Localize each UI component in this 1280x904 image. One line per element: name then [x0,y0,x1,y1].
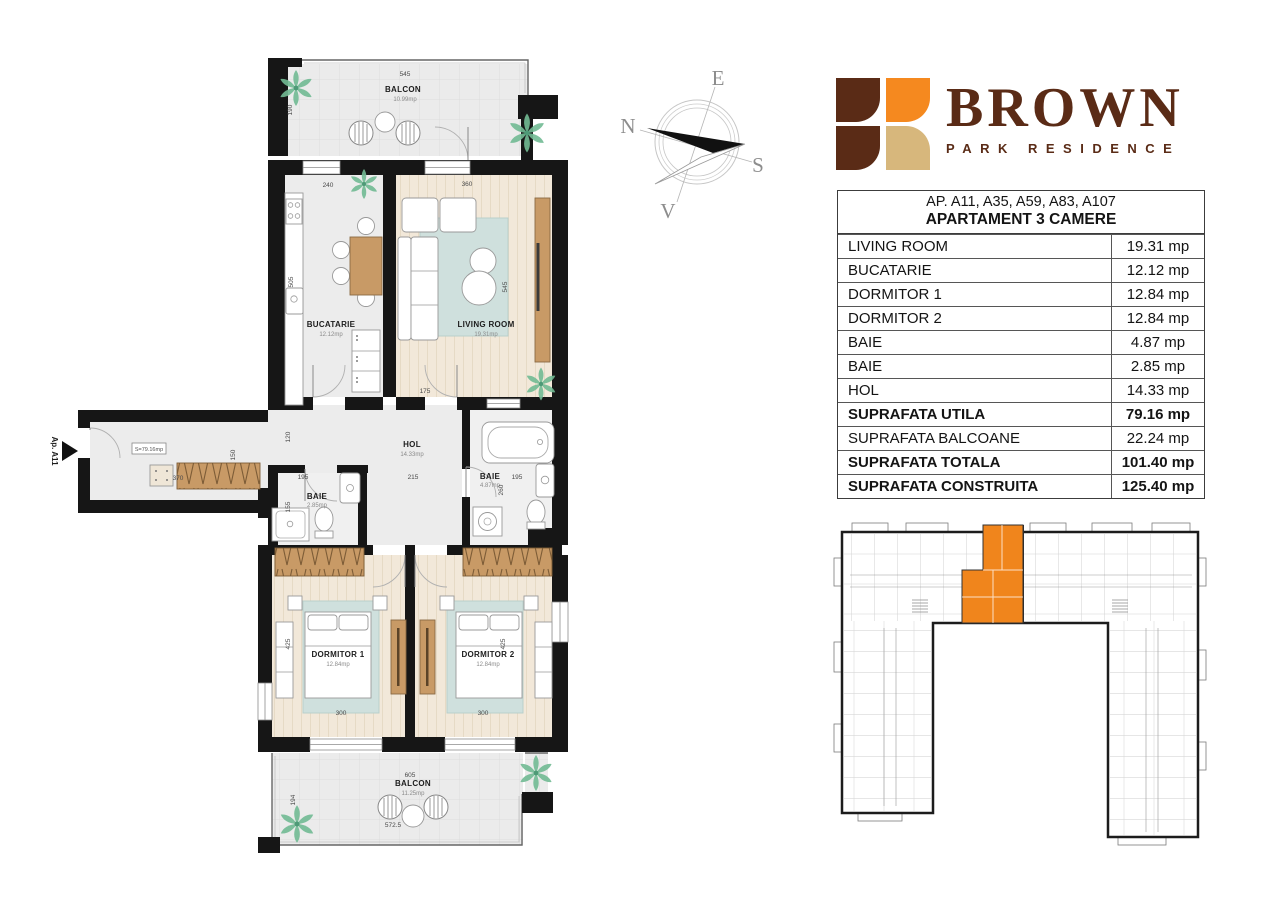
entry-arrow-icon [62,441,78,461]
brand-title: BROWN [946,80,1212,136]
svg-text:120: 120 [285,431,292,442]
svg-text:BALCON: BALCON [395,779,431,788]
svg-text:425: 425 [500,638,507,649]
svg-text:370: 370 [173,475,184,482]
compass-v: V [660,199,675,223]
apartment-areas-table: AP. A11, A35, A59, A83, A107 APARTAMENT … [837,190,1205,499]
svg-text:300: 300 [478,710,489,717]
apartment-numbers: AP. A11, A35, A59, A83, A107 [838,194,1204,210]
svg-text:2.85mp: 2.85mp [307,503,328,509]
svg-text:215: 215 [408,474,419,481]
svg-text:150: 150 [230,449,237,460]
svg-text:175: 175 [420,388,431,395]
svg-text:155: 155 [285,501,292,512]
svg-text:190: 190 [287,104,294,115]
logo-square-brown-tl [836,78,880,122]
table-row: DORMITOR 212.84 mp [838,306,1204,330]
floor-plan: Ap. A11 BALCON 10.99mp BUCATARIE 12.12mp… [0,0,640,904]
table-row: DORMITOR 112.84 mp [838,282,1204,306]
svg-text:545: 545 [400,71,411,78]
svg-text:194: 194 [290,794,297,805]
brand-subtitle: PARK RESIDENCE [946,141,1212,156]
building-key-plan [828,505,1228,855]
svg-text:11.25mp: 11.25mp [402,791,426,797]
logo-square-tan-br [886,126,930,170]
svg-text:BUCATARIE: BUCATARIE [307,320,356,329]
svg-text:545: 545 [502,281,509,292]
svg-text:260: 260 [498,484,505,495]
entry-marker-label: Ap. A11 [50,436,59,466]
svg-text:12.84mp: 12.84mp [476,662,500,668]
page: Ap. A11 BALCON 10.99mp BUCATARIE 12.12mp… [0,0,1280,904]
svg-text:360: 360 [462,181,473,188]
svg-text:240: 240 [323,182,334,189]
compass: E N S V [600,55,800,225]
svg-text:14.33mp: 14.33mp [400,452,424,458]
compass-rose-icon [640,87,752,202]
svg-text:BAIE: BAIE [480,472,501,481]
brand-logo-icon [836,78,932,172]
table-row: BAIE2.85 mp [838,354,1204,378]
logo-square-brown-bl [836,126,880,170]
table-row-total-totala: SUPRAFATA TOTALA101.40 mp [838,450,1204,474]
svg-text:10.99mp: 10.99mp [393,97,417,103]
table-row: HOL14.33 mp [838,378,1204,402]
apartment-type: APARTAMENT 3 CAMERE [838,211,1204,229]
svg-text:12.84mp: 12.84mp [326,662,350,668]
table-row-total-utila: SUPRAFATA UTILA79.16 mp [838,402,1204,426]
svg-text:195: 195 [512,474,523,481]
table-row: SUPRAFATA BALCOANE22.24 mp [838,426,1204,450]
svg-text:DORMITOR 1: DORMITOR 1 [311,650,364,659]
entry-marker: Ap. A11 [50,436,78,466]
table-row-total-construita: SUPRAFATA CONSTRUITA125.40 mp [838,474,1204,498]
brand-logo: BROWN PARK RESIDENCE [836,78,1212,172]
svg-text:HOL: HOL [403,440,421,449]
svg-text:300: 300 [336,710,347,717]
compass-e: E [712,66,725,90]
compass-n: N [620,114,635,138]
svg-text:505: 505 [288,276,295,287]
table-row: BUCATARIE12.12 mp [838,258,1204,282]
svg-text:195: 195 [298,474,309,481]
table-header: AP. A11, A35, A59, A83, A107 APARTAMENT … [838,191,1204,234]
svg-text:12.12mp: 12.12mp [319,332,343,338]
svg-text:DORMITOR 2: DORMITOR 2 [461,650,514,659]
svg-text:572.5: 572.5 [385,822,402,829]
compass-s: S [752,153,764,177]
logo-square-orange-tr [886,78,930,122]
svg-text:19.31mp: 19.31mp [474,332,498,338]
svg-text:S=79.16mp: S=79.16mp [135,447,163,453]
table-row: BAIE4.87 mp [838,330,1204,354]
svg-text:605: 605 [405,772,416,779]
table-row: LIVING ROOM19.31 mp [838,234,1204,258]
svg-text:LIVING ROOM: LIVING ROOM [457,320,514,329]
svg-text:BAIE: BAIE [307,492,328,501]
svg-text:425: 425 [285,638,292,649]
svg-text:BALCON: BALCON [385,85,421,94]
